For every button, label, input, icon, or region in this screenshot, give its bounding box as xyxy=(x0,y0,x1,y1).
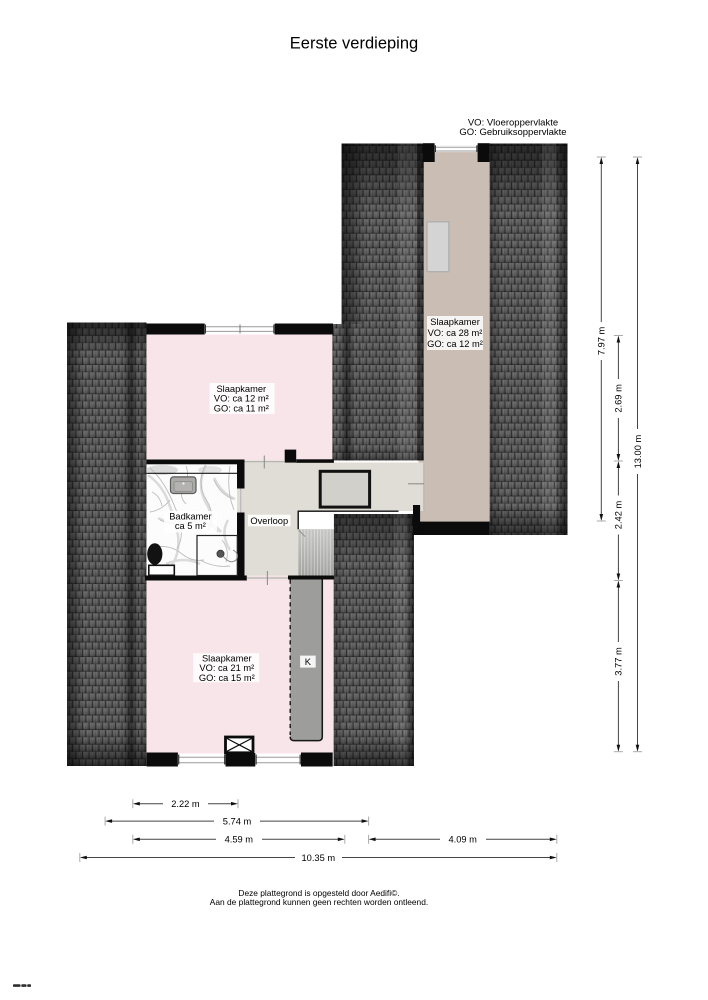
svg-text:Aan de plattegrond kunnen geen: Aan de plattegrond kunnen geen rechten w… xyxy=(210,897,428,907)
svg-text:Eerste verdieping: Eerste verdieping xyxy=(290,35,418,53)
svg-text:2.42 m: 2.42 m xyxy=(614,501,624,530)
svg-text:3.77 m: 3.77 m xyxy=(614,647,624,676)
svg-text:2.69 m: 2.69 m xyxy=(614,384,624,413)
svg-text:Slaapkamer: Slaapkamer xyxy=(216,384,266,394)
svg-text:VO: ca 21 m²: VO: ca 21 m² xyxy=(199,663,254,673)
svg-text:13.00 m: 13.00 m xyxy=(633,435,643,469)
svg-text:K: K xyxy=(305,657,312,667)
svg-text:VO: ca 12 m²: VO: ca 12 m² xyxy=(214,394,269,404)
svg-text:ca 5 m²: ca 5 m² xyxy=(175,521,206,531)
svg-text:GO: ca 12 m²: GO: ca 12 m² xyxy=(427,339,483,349)
svg-text:4.09 m: 4.09 m xyxy=(448,835,477,845)
svg-text:Overloop: Overloop xyxy=(250,516,288,526)
svg-text:Slaapkamer: Slaapkamer xyxy=(202,654,252,664)
svg-text:2.22 m: 2.22 m xyxy=(171,799,200,809)
svg-text:10.35 m: 10.35 m xyxy=(302,853,336,863)
svg-text:7.97 m: 7.97 m xyxy=(597,327,607,356)
svg-text:VO: ca 28 m²: VO: ca 28 m² xyxy=(428,328,483,338)
svg-text:GO: ca 11 m²: GO: ca 11 m² xyxy=(214,403,269,413)
svg-text:Badkamer: Badkamer xyxy=(169,512,211,522)
svg-text:GO: Gebruiksoppervlakte: GO: Gebruiksoppervlakte xyxy=(459,127,566,138)
svg-text:5.74 m: 5.74 m xyxy=(223,816,252,826)
svg-text:Slaapkamer: Slaapkamer xyxy=(430,317,480,327)
svg-text:4.59 m: 4.59 m xyxy=(225,835,254,845)
svg-text:GO: ca 15 m²: GO: ca 15 m² xyxy=(199,673,255,683)
